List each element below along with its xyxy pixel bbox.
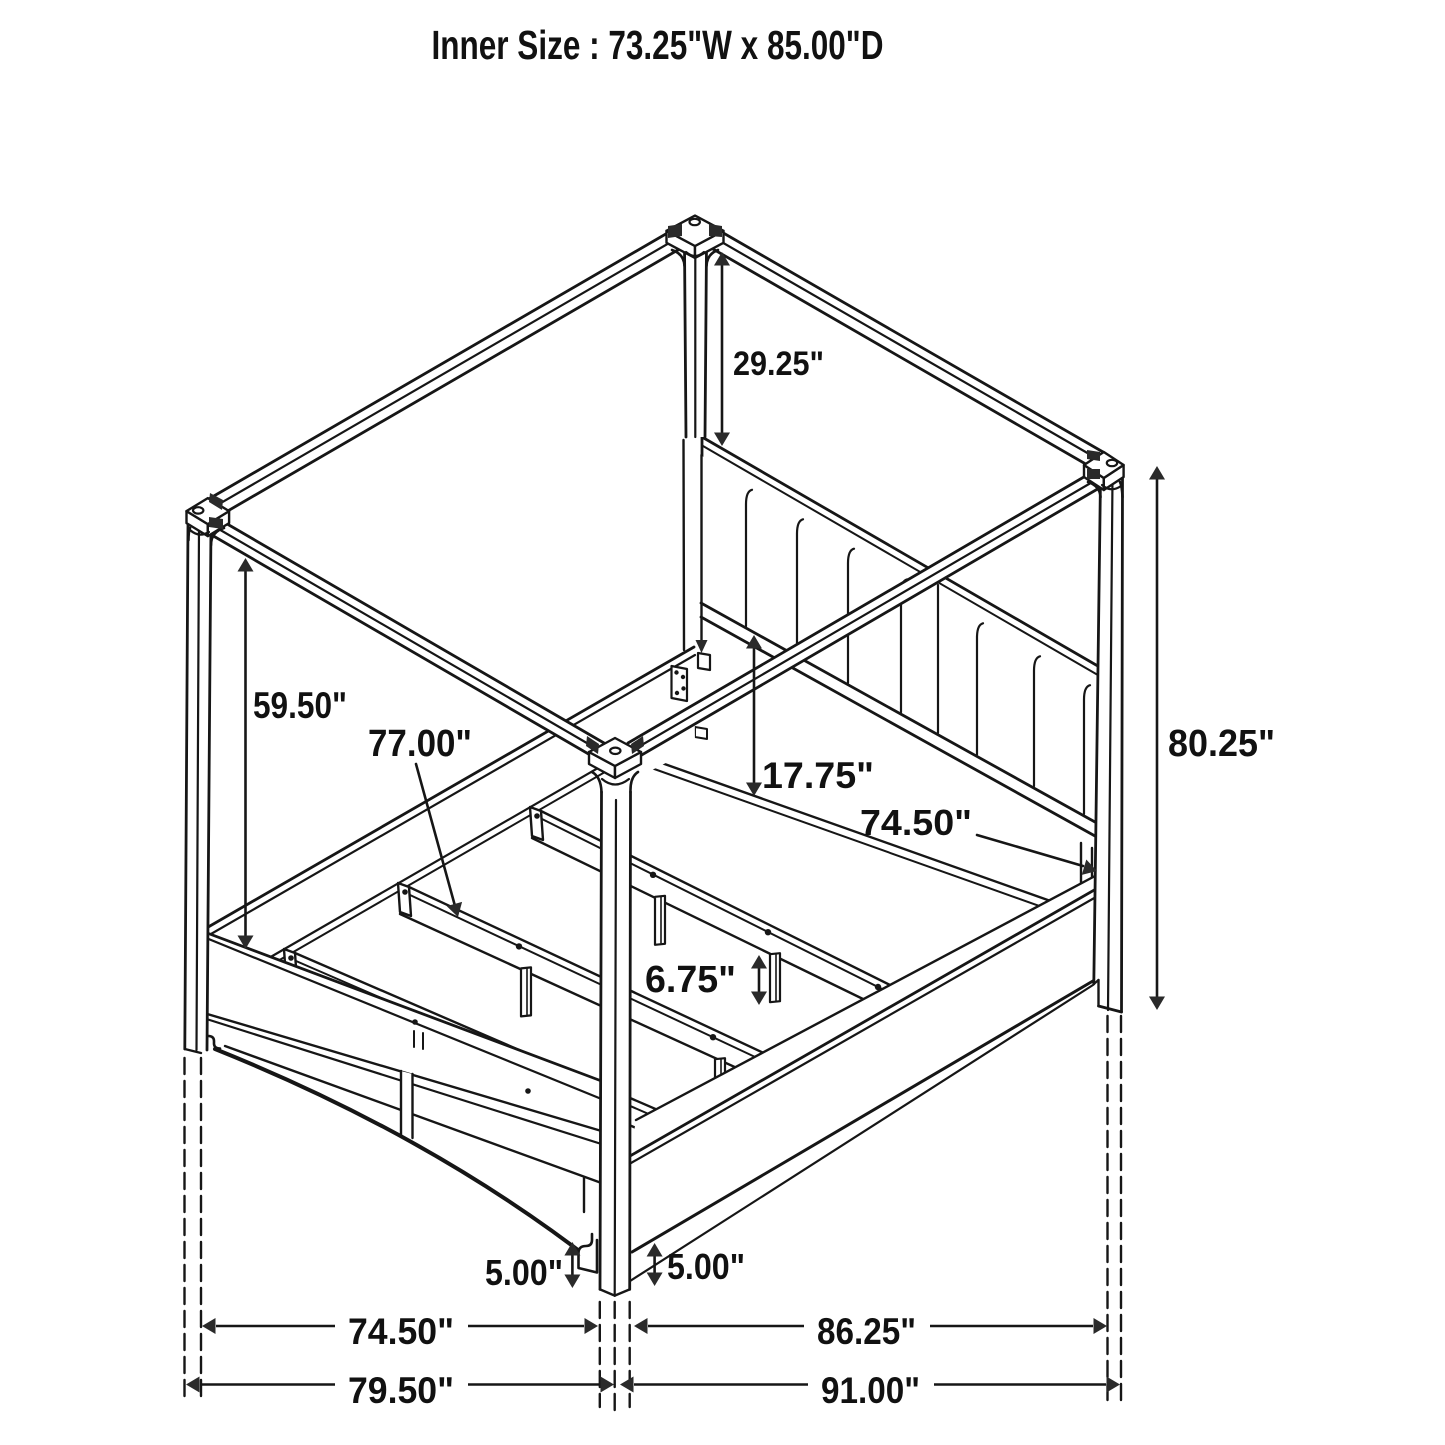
svg-text:Inner Size : 73.25"W x 85.00"D: Inner Size : 73.25"W x 85.00"D xyxy=(432,22,884,68)
svg-text:5.00": 5.00" xyxy=(667,1246,745,1287)
svg-text:80.25": 80.25" xyxy=(1168,723,1275,765)
svg-text:74.50": 74.50" xyxy=(348,1311,454,1352)
svg-text:86.25": 86.25" xyxy=(817,1311,916,1352)
svg-text:17.75": 17.75" xyxy=(762,755,874,796)
svg-text:5.00": 5.00" xyxy=(485,1252,563,1293)
svg-text:6.75": 6.75" xyxy=(645,959,736,1001)
svg-text:74.50": 74.50" xyxy=(860,802,972,843)
svg-text:79.50": 79.50" xyxy=(348,1370,454,1411)
svg-text:77.00": 77.00" xyxy=(368,723,472,765)
svg-text:29.25": 29.25" xyxy=(733,345,824,383)
svg-text:59.50": 59.50" xyxy=(253,685,347,726)
svg-text:91.00": 91.00" xyxy=(821,1370,920,1411)
